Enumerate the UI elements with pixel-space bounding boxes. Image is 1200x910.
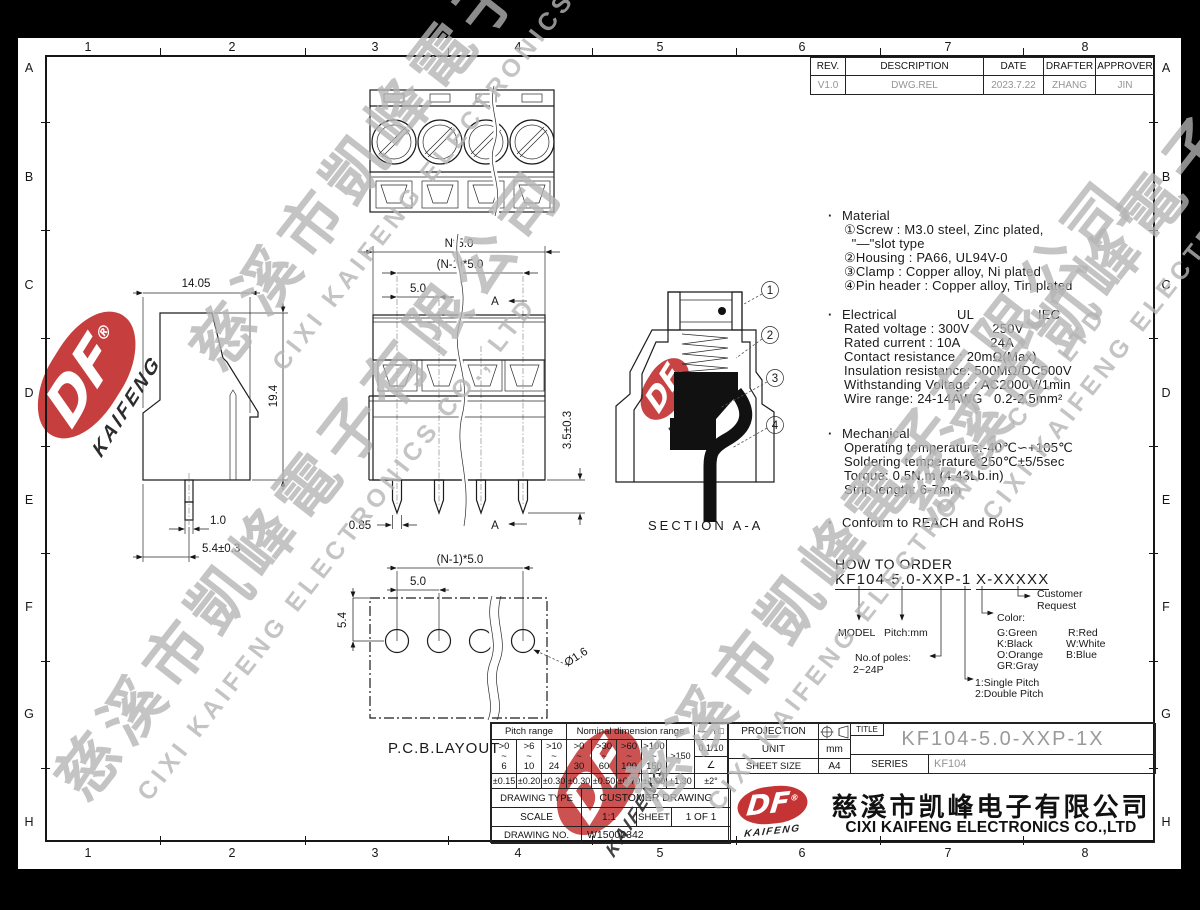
- pitch-tolerance: ±0.15: [491, 773, 517, 789]
- order-customer-label2: Request: [1037, 600, 1076, 612]
- grid-tick: [41, 338, 50, 339]
- rev-value: V1.0: [810, 75, 846, 95]
- dim-pin-offset: 5.4±0.3: [202, 543, 240, 555]
- grid-row-label: E: [25, 493, 33, 507]
- grid-col-label: 8: [1082, 846, 1089, 860]
- date-value: 2023.7.22: [983, 75, 1044, 95]
- wire-cavities: [376, 181, 550, 208]
- title-label-box: TITLE: [850, 723, 884, 736]
- svg-text:2: 2: [767, 330, 773, 342]
- grid-col-label: 3: [372, 40, 379, 54]
- pitch-range: >6 ~ 10: [516, 739, 542, 774]
- grid-row-label: E: [1162, 493, 1170, 507]
- sheet-size-value: A4: [818, 758, 851, 774]
- grid-row-label: D: [1161, 386, 1170, 400]
- description-header: DESCRIPTION: [845, 57, 984, 76]
- symbol-header: — ∩ □: [694, 723, 728, 740]
- svg-text:1: 1: [767, 285, 773, 297]
- grid-tick: [160, 836, 161, 845]
- drawing-title: KF104-5.0-XXP-1X: [901, 734, 1104, 745]
- grid-col-label: 1: [85, 846, 92, 860]
- series-label: SERIES: [850, 754, 929, 774]
- grid-col-label: 2: [229, 40, 236, 54]
- grid-row-label: G: [24, 707, 34, 721]
- nominal-tolerance: ±0.30: [566, 773, 592, 789]
- description-value: DWG.REL: [845, 75, 984, 95]
- grid-row-label: C: [24, 278, 33, 292]
- section-mark-top: A: [491, 296, 499, 308]
- material-title: Material: [842, 208, 890, 223]
- material-line: ④Pin header : Copper alloy, Tin plated: [844, 278, 1073, 294]
- grid-col-label: 6: [799, 40, 806, 54]
- view-front: N*5.0 (N-1)*5.0 5.0 A 3.5±0.3 0.85 A: [338, 226, 604, 540]
- dim-pitch: 5.0: [410, 576, 426, 588]
- electrical-bullet: ·: [828, 307, 832, 322]
- rev-header: REV.: [810, 57, 846, 76]
- grid-tick: [448, 48, 449, 57]
- dim-depth: 14.05: [182, 278, 211, 290]
- sheet-size-label: SHEET SIZE: [728, 758, 819, 774]
- grid-tick: [305, 836, 306, 845]
- electrical-line: Insulation resistance: 500MΩ/DC500V: [844, 363, 1072, 378]
- approver-header: APPROVER: [1095, 57, 1155, 76]
- screw-circles: [372, 120, 554, 164]
- electrical-line: Wire range: 24-14AWG 0.2-2.5mm²: [844, 391, 1063, 406]
- order-color-label: Color:: [997, 612, 1025, 624]
- series-value: KF104: [928, 754, 1156, 774]
- grid-tick: [41, 661, 50, 662]
- view-top: [366, 84, 558, 220]
- sheet-value: 1 OF 1: [671, 807, 731, 827]
- dim-pin-width: 1.0: [210, 515, 226, 527]
- title-cell: KF104-5.0-XXP-1X: [850, 723, 1156, 755]
- grid-col-label: 8: [1082, 40, 1089, 54]
- grid-col-label: 7: [945, 40, 952, 54]
- pitch-range: >10 ~ 24: [541, 739, 567, 774]
- grid-tick: [41, 446, 50, 447]
- view-side: 14.05 19.4 1.0 5.4±0.3: [133, 273, 301, 573]
- section-label: SECTION A-A: [648, 518, 763, 533]
- material-bullet: ·: [828, 208, 832, 223]
- section-mark-bottom: A: [491, 520, 499, 532]
- pitch-tolerance: ±0.20: [516, 773, 542, 789]
- grid-col-label: 3: [372, 846, 379, 860]
- conform-line: Conform to REACH and RoHS: [842, 515, 1024, 530]
- dim-height: 19.4: [268, 384, 280, 407]
- over-range: >150: [666, 739, 695, 774]
- order-color-option: GR:Gray: [997, 660, 1038, 672]
- date-header: DATE: [983, 57, 1044, 76]
- view-section: 1 2 3 4: [610, 276, 825, 544]
- nominal-tolerance: ±0.50: [591, 773, 617, 789]
- dim-pitch: 5.0: [410, 283, 426, 295]
- mechanical-line: Torque: 0.5N.m (4.43Lb.in): [844, 468, 1004, 483]
- screw-thread: [682, 334, 728, 376]
- electrical-line: Contact resistance : 20mΩ(Max): [844, 349, 1037, 364]
- grid-row-label: D: [24, 386, 33, 400]
- mechanical-line: Strip length: 6-7mm: [844, 482, 961, 497]
- pitch-range: >0 ~ 6: [491, 739, 517, 774]
- order-poles-range: 2~24P: [853, 664, 884, 676]
- grid-tick: [41, 768, 50, 769]
- electrical-line: Withstanding Voltage : AC2000V/1min: [844, 377, 1071, 392]
- nominal-range-header: Nominal dimension range: [566, 723, 695, 740]
- dim-pin-width: 0.85: [349, 520, 371, 532]
- grid-row-label: B: [25, 170, 33, 184]
- nominal-range: >60 ~ 100: [616, 739, 642, 774]
- drawing-type-value: CUSTOMER DRAWING: [581, 788, 731, 808]
- grid-tick: [1149, 230, 1158, 231]
- order-title: HOW TO ORDER: [835, 556, 953, 572]
- grid-tick: [160, 48, 161, 57]
- title-block: Pitch range Nominal dimension range — ∩ …: [490, 722, 1155, 843]
- drafter-value: ZHANG: [1043, 75, 1096, 95]
- scale-label: SCALE: [491, 807, 582, 827]
- grid-tick: [1149, 122, 1158, 123]
- mechanical-bullet: ·: [828, 426, 832, 441]
- first-angle-projection-icon: [818, 723, 851, 740]
- grid-tick: [1149, 553, 1158, 554]
- grid-tick: [448, 836, 449, 845]
- electrical-col-iec: IEC: [1038, 307, 1060, 322]
- grid-tick: [1149, 338, 1158, 339]
- order-model-label: MODEL: [838, 627, 875, 639]
- solder-pins: [393, 480, 528, 513]
- mechanical-title: Mechanical: [842, 426, 910, 441]
- grid-row-label: H: [24, 815, 33, 829]
- grid-row-label: A: [25, 61, 33, 75]
- grid-row-label: H: [1161, 815, 1170, 829]
- angle-symbol: ∠: [694, 756, 728, 774]
- grid-tick: [1149, 446, 1158, 447]
- dim-hole-dia: Ø1.6: [563, 646, 590, 670]
- electrical-line: Rated voltage : 300V 250V: [844, 321, 1023, 336]
- grid-row-label: F: [25, 600, 33, 614]
- engineering-drawing-sheet: { "grid": { "cols": ["1","2","3","4","5"…: [0, 0, 1200, 910]
- order-color-option: B:Blue: [1066, 649, 1097, 661]
- projection-label: PROJECTION: [728, 723, 819, 740]
- nominal-tolerance: ±1.00: [641, 773, 667, 789]
- grid-col-label: 5: [657, 40, 664, 54]
- grid-tick: [41, 122, 50, 123]
- pcb-holes: [386, 630, 535, 653]
- grid-col-label: 4: [515, 846, 522, 860]
- svg-text:3: 3: [772, 373, 778, 385]
- pitch-tolerance: ±0.30: [541, 773, 567, 789]
- order-customer-label: Customer: [1037, 588, 1083, 600]
- nominal-tolerance: ±0.70: [616, 773, 642, 789]
- pcb-layout-label: P.C.B.LAYOUT: [388, 740, 500, 757]
- grid-col-label: 7: [945, 846, 952, 860]
- electrical-col-ul: UL: [957, 307, 974, 322]
- grid-tick: [305, 48, 306, 57]
- order-poles-label: No.of poles:: [855, 652, 911, 664]
- company-name-en: CIXI KAIFENG ELECTRONICS CO.,LTD: [831, 819, 1151, 837]
- drawing-type-label: DRAWING TYPE: [491, 788, 582, 808]
- grid-row-label: B: [1162, 170, 1170, 184]
- grid-col-label: 2: [229, 846, 236, 860]
- dim-pin-length: 3.5±0.3: [562, 411, 574, 449]
- approver-value: JIN: [1095, 75, 1155, 95]
- dim-span: (N-1)*5.0: [437, 554, 484, 566]
- svg-text:4: 4: [772, 420, 779, 432]
- order-pitch-label: Pitch:mm: [884, 627, 928, 639]
- grid-row-label: F: [1162, 600, 1170, 614]
- grid-col-label: 1: [85, 40, 92, 54]
- flatness-tolerance: 0.1/10: [694, 739, 728, 757]
- grid-row-label: C: [1161, 278, 1170, 292]
- grid-tick: [880, 48, 881, 57]
- grid-row-label: A: [1162, 61, 1170, 75]
- callout-1: 1: [744, 282, 779, 305]
- material-line: "—"slot type: [844, 236, 925, 251]
- drawing-no-label: DRAWING NO.: [491, 826, 582, 844]
- screw-head-section: [668, 292, 742, 330]
- nominal-range: >0 ~ 30: [566, 739, 592, 774]
- grid-col-label: 6: [799, 846, 806, 860]
- grid-col-label: 5: [657, 846, 664, 860]
- grid-tick: [41, 230, 50, 231]
- grid-tick: [41, 553, 50, 554]
- grid-row-label: G: [1161, 707, 1171, 721]
- unit-label: UNIT: [728, 739, 819, 759]
- nominal-tolerance: ±1.30: [666, 773, 695, 789]
- conform-bullet: ·: [828, 515, 832, 530]
- sheet-label: SHEET: [636, 807, 672, 827]
- grid-col-label: 4: [515, 40, 522, 54]
- grid-tick: [736, 48, 737, 57]
- revision-table: REV. DESCRIPTION DATE DRAFTER APPROVER V…: [810, 57, 1155, 95]
- drafter-header: DRAFTER: [1043, 57, 1096, 76]
- nominal-range: >30 ~ 60: [591, 739, 617, 774]
- pitch-range-header: Pitch range: [491, 723, 567, 740]
- scale-value: 1:1: [581, 807, 637, 827]
- electrical-line: Rated current : 10A 24A: [844, 335, 1014, 350]
- grid-tick: [592, 48, 593, 57]
- dim-row: 5.4: [337, 611, 349, 628]
- grid-tick: [1023, 48, 1024, 57]
- unit-value: mm: [818, 739, 851, 759]
- order-pitch-opt2: 2:Double Pitch: [975, 688, 1043, 700]
- clamp-block: [670, 418, 716, 450]
- angle-tolerance: ±2°: [694, 773, 728, 789]
- nominal-range: >100 ~ 150: [641, 739, 667, 774]
- drawing-no-value: W15000342: [581, 826, 731, 844]
- electrical-title: Electrical: [842, 307, 897, 322]
